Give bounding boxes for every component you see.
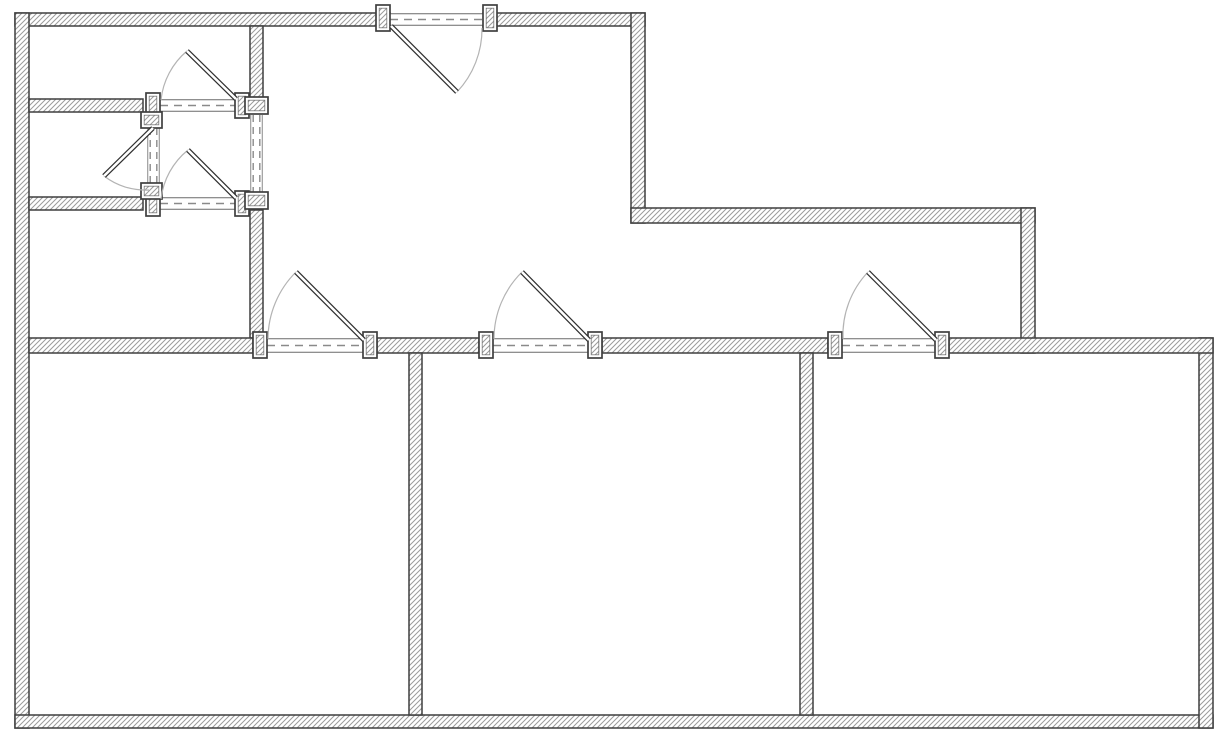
south-corridor-wall-a bbox=[29, 338, 253, 353]
south-corridor-wall-b bbox=[377, 338, 479, 353]
step-north-wall bbox=[631, 208, 1035, 223]
top-wall-east bbox=[483, 13, 645, 26]
closet-south-wall bbox=[29, 197, 143, 210]
room-divider-east bbox=[800, 353, 813, 715]
room1-jamb-right-core bbox=[366, 335, 374, 355]
left-divider-lower bbox=[250, 210, 263, 338]
entry-jamb-left-core bbox=[379, 8, 387, 28]
bottom-wall bbox=[15, 715, 1213, 728]
right-wall bbox=[1199, 338, 1213, 728]
south-corridor-wall-d bbox=[949, 338, 1213, 353]
left-wall bbox=[15, 13, 29, 728]
room1-jamb-left-core bbox=[256, 335, 264, 355]
hall-passage-jamb-top-core bbox=[248, 100, 265, 111]
hall-east-wall bbox=[631, 13, 645, 223]
room-divider-west bbox=[409, 353, 422, 715]
closet-north-wall bbox=[29, 99, 143, 112]
room2-jamb-right-core bbox=[591, 335, 599, 355]
vestibule-west-jamb-top-core bbox=[144, 115, 159, 125]
floor-plan-svg bbox=[0, 0, 1225, 740]
south-corridor-wall-c bbox=[602, 338, 828, 353]
room2-jamb-left-core bbox=[482, 335, 490, 355]
floor-plan bbox=[0, 0, 1225, 740]
step-east-wall bbox=[1021, 208, 1035, 353]
hall-passage-jamb-bottom-core bbox=[248, 195, 265, 206]
left-divider-upper bbox=[250, 26, 263, 99]
room3-jamb-left-core bbox=[831, 335, 839, 355]
entry-jamb-right-core bbox=[486, 8, 494, 28]
top-wall-west bbox=[15, 13, 390, 26]
room3-jamb-right-core bbox=[938, 335, 946, 355]
vestibule-west-jamb-bottom-core bbox=[144, 186, 159, 196]
